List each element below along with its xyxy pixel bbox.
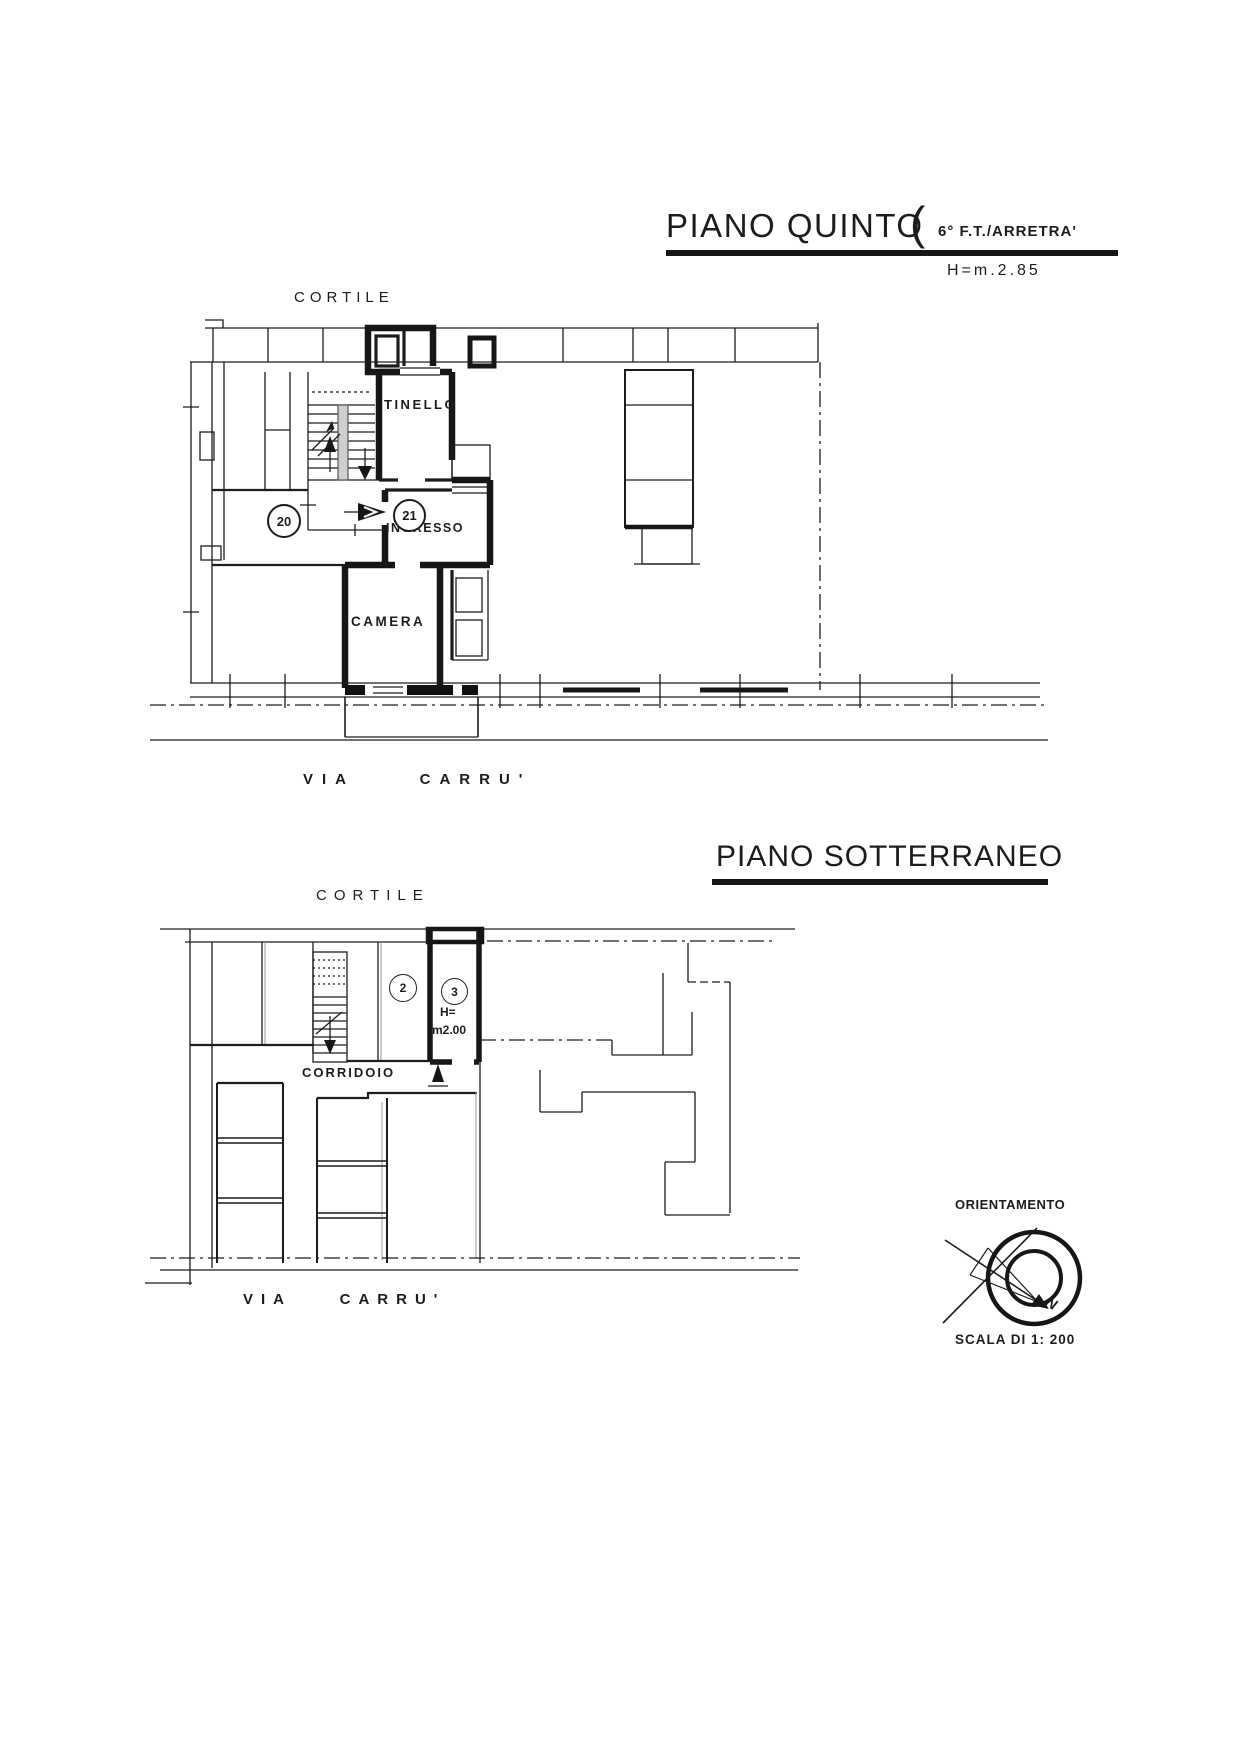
light-shaft [625, 370, 700, 564]
lower-plan-drawing [145, 929, 800, 1285]
middle-cellar-column [317, 1098, 387, 1263]
ingresso-top-window [452, 487, 488, 493]
floor-plan-sheet: PIANO QUINTO ( 6° F.T./ARRETRA' H=m.2.85… [0, 0, 1241, 1755]
stepped-walls-lower [540, 1070, 730, 1215]
compass-cross-line [943, 1228, 1037, 1323]
basement-stair-dotted [313, 960, 347, 984]
unit-21-badge: 21 [393, 499, 426, 532]
basement-stair-diagonal [316, 1012, 342, 1034]
corridor-walls [217, 1083, 477, 1098]
fence-posts [213, 323, 818, 362]
entrance-arrow-icon [344, 503, 386, 521]
unit-21-number: 21 [402, 508, 416, 523]
scale-label: SCALA DI 1: 200 [955, 1333, 1075, 1347]
upper-plan-title-annex: 6° F.T./ARRETRA' [938, 224, 1077, 239]
cellar-height-line2: m2.00 [432, 1024, 466, 1036]
upper-plan-title: PIANO QUINTO [666, 209, 924, 242]
cellar3-top-protrusion [428, 929, 482, 942]
lower-courtyard-label: CORTILE [316, 888, 430, 903]
bath-fixture-1 [456, 578, 482, 612]
entrance-arrow-head [358, 503, 386, 521]
left-column-walls [217, 1083, 283, 1263]
stair-down-arrow-icon [358, 466, 372, 480]
upper-title-underline [666, 250, 1118, 256]
door-arrow-head [432, 1064, 444, 1082]
cellar-height-line1: H= [440, 1006, 456, 1018]
left-window-2 [201, 546, 221, 560]
camera-street-window [373, 687, 403, 693]
unit-20-badge: 20 [267, 504, 301, 538]
lower-street-label: VIA CARRU' [243, 1292, 445, 1307]
closet [452, 445, 490, 480]
plans-drawing [0, 0, 1241, 1755]
tinello-label: TINELLO [384, 398, 457, 411]
courtyard-fence-line [205, 320, 818, 328]
left-column-dividers [217, 1138, 283, 1203]
basement-staircase [313, 952, 347, 1062]
left-block-walls [183, 362, 224, 683]
cellar-3-badge: 3 [441, 978, 468, 1005]
balcony-sides [345, 697, 478, 737]
cellar-3-number: 3 [451, 985, 458, 999]
orientation-label: ORIENTAMENTO [955, 1198, 1065, 1211]
cellar-partitions [212, 942, 378, 1061]
shaft-inner-lines [625, 405, 693, 480]
shaft-annex [642, 528, 692, 564]
lower-plan-title: PIANO SOTTERRANEO [716, 842, 1063, 872]
compass-icon [943, 1228, 1080, 1324]
camera-label: CAMERA [351, 615, 425, 629]
cellar-row-bottom [190, 1045, 430, 1061]
lower-title-underline [712, 879, 1048, 885]
corridor-label: CORRIDOIO [302, 1066, 395, 1079]
street-facade [150, 674, 1048, 740]
stair-stringer [338, 405, 348, 480]
middle-column-dividers [317, 1161, 387, 1218]
upper-courtyard-label: CORTILE [294, 290, 394, 305]
cellar-2-number: 2 [400, 981, 407, 995]
bath-fixture-2 [456, 620, 482, 656]
upper-height-note: H=m.2.85 [947, 263, 1041, 279]
upper-street-label: VIA CARRU' [303, 772, 531, 787]
right-stepped-walls [480, 943, 730, 1215]
cellar3-door-arrow-icon [428, 1064, 448, 1086]
stepped-walls-upper [612, 943, 730, 1213]
left-cellar-column [217, 1083, 283, 1263]
middle-column-walls [317, 1098, 387, 1263]
shaft-outline [625, 370, 693, 527]
basement-stair-arrow-icon [324, 1040, 336, 1054]
cellar-2-badge: 2 [389, 974, 417, 1002]
basement-left-edge [145, 929, 212, 1285]
upper-plan-title-paren: ( [910, 200, 925, 246]
staircase [308, 372, 379, 480]
unit-20-number: 20 [277, 514, 291, 529]
duct-shaft-lines [265, 372, 290, 490]
